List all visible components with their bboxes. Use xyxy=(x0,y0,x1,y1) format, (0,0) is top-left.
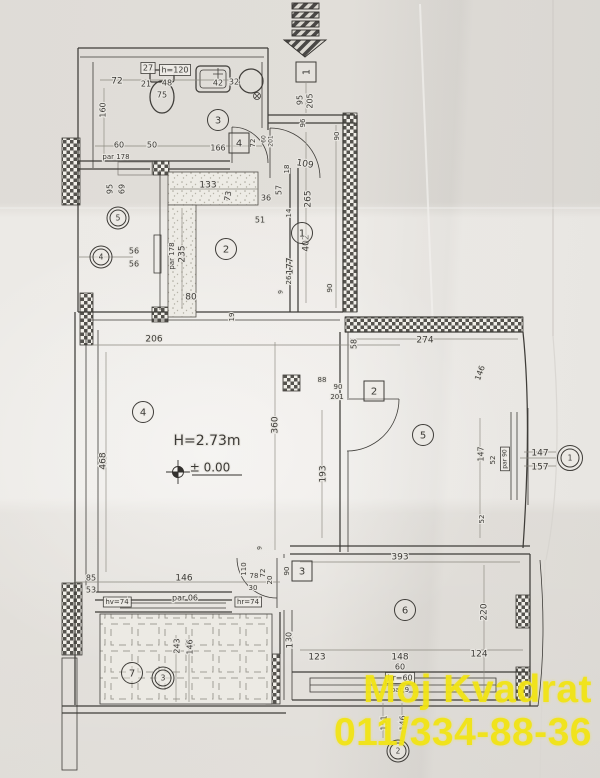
room-tag-5: 5 xyxy=(413,425,434,446)
dimension-label: H=2.73m xyxy=(173,433,240,449)
dimension-label: 133 xyxy=(199,181,216,191)
dimension-label: 166 xyxy=(210,144,225,153)
riser-tag-3: 3 xyxy=(152,667,174,689)
watermark: Moj Kvadrat 011/334-88-36 xyxy=(334,668,592,754)
dimension-label: 468 xyxy=(99,452,109,469)
dimension-label: 53 xyxy=(86,586,96,595)
dimension-label: 57 xyxy=(275,185,284,195)
dimension-label: 123 xyxy=(308,653,325,663)
room-tag-2: 2 xyxy=(216,239,237,260)
dimension-label: 177 xyxy=(286,257,296,274)
dimension-label: 146 xyxy=(473,364,487,381)
dimension-label: 56 xyxy=(129,260,139,269)
dimension-label: 206 xyxy=(145,335,162,345)
room-tag-7: 7 xyxy=(122,663,143,684)
dimension-label: 9 xyxy=(278,290,285,294)
window-tag-1: 1 xyxy=(558,446,583,471)
dimension-label: 75 xyxy=(157,91,167,100)
dimension-label: 220 xyxy=(480,603,490,620)
dimension-label: 56 xyxy=(129,247,139,256)
riser-tag-4: 4 xyxy=(90,246,112,268)
dimension-label: 9 xyxy=(257,546,264,550)
tag-number: 7 xyxy=(129,669,135,680)
dimension-label: 48 xyxy=(162,79,172,88)
dimension-label: 72 xyxy=(249,139,257,148)
tag-number: 3 xyxy=(161,674,166,683)
tag-number: 3 xyxy=(299,567,305,578)
dimension-label: 18 xyxy=(283,165,291,174)
kitchen-counters xyxy=(168,172,258,317)
dimension-label: 96 xyxy=(299,118,307,127)
dimension-label: 69 xyxy=(118,184,127,194)
dimension-label: 147 xyxy=(477,446,486,461)
dimension-label: 146 xyxy=(175,574,192,584)
dimension-label: 147 xyxy=(531,449,548,459)
dimension-label: 160 xyxy=(99,102,108,117)
dimension-label: 360 xyxy=(271,416,281,433)
door-tag-3: 3 xyxy=(292,561,312,581)
dimension-label: par 178 xyxy=(168,242,176,269)
dimension-label: 243 xyxy=(173,638,182,653)
dimension-label: 95 xyxy=(106,184,115,194)
dimension-label: 50 xyxy=(147,141,157,150)
dimension-label: hr=74 xyxy=(237,598,260,606)
watermark-brand: Moj Kvadrat xyxy=(334,668,592,711)
tag-number: 2 xyxy=(223,245,229,256)
dimension-label: 58 xyxy=(350,339,359,349)
room-tag-4: 4 xyxy=(133,402,154,423)
dimension-label: 265 xyxy=(304,190,314,207)
dimension-label: 90 xyxy=(334,383,343,391)
dimension-label: 60 xyxy=(261,135,268,143)
dimension-label: 95 xyxy=(296,95,305,105)
dimension-label: par 90 xyxy=(502,449,509,469)
dimension-label: par 178 xyxy=(102,153,129,161)
dimension-label: 85 xyxy=(86,574,96,583)
dimension-label: 193 xyxy=(319,465,329,482)
tag-number: 1 xyxy=(302,69,313,75)
washing-machine xyxy=(239,69,263,93)
room-tag-1: 1 xyxy=(292,223,313,244)
dimension-label: 72 xyxy=(111,77,122,87)
dimension-label: 60 xyxy=(114,141,124,150)
tag-number: 1 xyxy=(299,229,305,240)
dimension-label: h=120 xyxy=(161,66,188,75)
dimension-label: 90 xyxy=(283,567,291,576)
dimension-label: 201 xyxy=(330,393,343,401)
tag-number: 5 xyxy=(116,214,121,223)
tag-number: 2 xyxy=(371,387,377,398)
room-tag-6: 6 xyxy=(395,600,416,621)
room-tag-3: 3 xyxy=(208,110,229,131)
tag-number: 4 xyxy=(236,139,242,150)
dimension-label: par 06 xyxy=(172,594,198,603)
tag-number: 4 xyxy=(99,253,104,262)
dimension-label: 110 xyxy=(240,562,248,575)
riser-tag-5: 5 xyxy=(107,207,129,229)
dimension-label: 19 xyxy=(228,313,236,322)
dimension-label: 157 xyxy=(531,463,548,473)
dimension-label: 21 xyxy=(141,80,151,89)
watermark-phone: 011/334-88-36 xyxy=(334,711,592,754)
tag-number: 3 xyxy=(215,116,221,127)
dimension-label: hv=74 xyxy=(105,598,129,606)
dimension-label: 78 xyxy=(250,572,259,580)
dimension-label: 52 xyxy=(478,515,486,524)
dimension-label: 148 xyxy=(391,653,408,663)
dimension-label: 146 xyxy=(186,639,195,654)
door-tag-4: 4 xyxy=(229,133,249,153)
dimension-label: 274 xyxy=(416,336,433,346)
dimension-label: 52 xyxy=(489,456,497,465)
dimension-label: 26 xyxy=(285,275,293,284)
dimension-label: 88 xyxy=(318,376,327,384)
dimension-label: 90 xyxy=(326,284,334,293)
door-tag-2: 2 xyxy=(364,381,384,401)
dimension-label: 32 xyxy=(229,78,239,87)
dimension-label: 205 xyxy=(306,93,315,108)
dimension-label: 36 xyxy=(261,194,271,203)
dimension-label: 30 xyxy=(285,632,294,642)
floorplan-drawing: 9520596907227h=12021487542321606050166pa… xyxy=(0,0,600,778)
floorplan-page: 9520596907227h=12021487542321606050166pa… xyxy=(0,0,600,778)
dimension-label: 42 xyxy=(213,79,223,88)
tag-number: 5 xyxy=(420,431,426,442)
tag-number: 1 xyxy=(568,454,573,463)
dimension-label: 124 xyxy=(470,650,487,660)
dimension-label: 235 xyxy=(178,245,188,262)
tag-number: 6 xyxy=(402,606,408,617)
dimension-label: 73 xyxy=(223,190,234,202)
door-tag-1: 1 xyxy=(296,62,316,82)
dimension-label: 201 xyxy=(268,135,275,147)
dimension-label: 393 xyxy=(391,553,408,563)
dimension-label: 20 xyxy=(266,576,274,585)
dimension-label: ± 0.00 xyxy=(190,461,231,475)
dimension-label: 27 xyxy=(143,64,153,73)
dimension-label: 30 xyxy=(249,584,258,592)
entrance-arrow xyxy=(284,3,326,57)
dimension-label: 80 xyxy=(185,293,197,303)
tag-number: 4 xyxy=(140,408,146,419)
dimension-label: 51 xyxy=(255,216,265,225)
dimension-label: 90 xyxy=(333,132,341,141)
terrace-tile-floor xyxy=(100,614,272,704)
dimension-label: 14 xyxy=(285,208,293,217)
